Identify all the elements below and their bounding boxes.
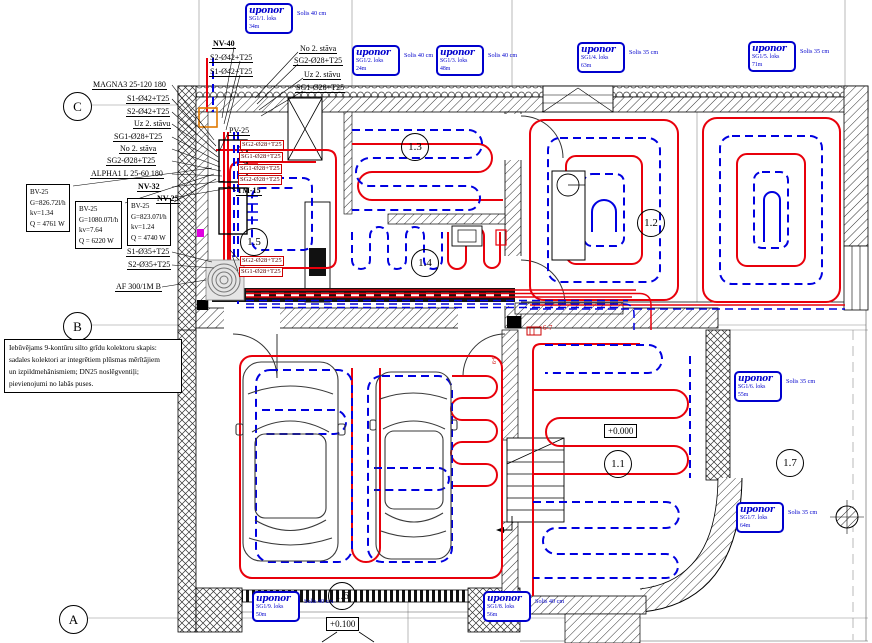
kv-value: kv=1.34	[30, 208, 66, 219]
pipe-spacing: Solis 35 cm	[629, 49, 658, 56]
loop-id: SG1/1. loks	[249, 16, 289, 24]
note-line: sadales kolektori ar integrētiem plūsmas…	[9, 354, 177, 366]
uponor-logo: uponor	[356, 48, 396, 58]
loop-id: SG1/4. loks	[581, 55, 621, 63]
pipe-spacing: Solis 40 cm	[297, 10, 326, 17]
heat-output: Q = 4761 W	[30, 219, 66, 230]
pipe-tag-4: SG2-Ø28+T25	[238, 175, 282, 185]
uponor-badge-loop1: uponor SG1/1. loks 34m Solis 40 cm	[245, 3, 326, 34]
loop-length: 34m	[249, 24, 289, 32]
label-no2-a: No 2. stāva	[299, 45, 337, 54]
uponor-badge-loop2: uponor SG1/2. loks 24m Solis 40 cm	[352, 45, 433, 76]
valve-type: BV-25	[79, 204, 118, 215]
flow-rate: G=1080.07l/h	[79, 215, 118, 226]
label-magna-pump: MAGNA3 25-120 180	[92, 81, 167, 90]
uponor-logo: uponor	[256, 594, 296, 604]
pipe-tag-3: SG1-Ø28+T25	[238, 164, 282, 174]
loop-id: SG1/2. loks	[356, 58, 396, 66]
label-s2-42-a: S2-Ø42+T25	[209, 54, 253, 63]
floor-heating-plan: C B A uponor SG1/1. loks 34m Solis 40 cm…	[0, 0, 872, 643]
uponor-logo: uponor	[738, 374, 778, 384]
label-no2-b: No 2. stāva	[119, 145, 157, 154]
room-circle-1-6: 1.6	[328, 582, 356, 610]
elevation-marker-ground: +0.000	[604, 424, 637, 438]
floor-drain	[206, 260, 244, 300]
kv-value: kv=1.24	[131, 222, 167, 233]
loop-id: SG1/7. loks	[740, 515, 780, 523]
label-sg2-28-a: SG2-Ø28+T25	[293, 57, 343, 66]
room-circle-1-1: 1.1	[604, 450, 632, 478]
uponor-badge-loop7: uponor SG1/7. loks 64m Solis 35 cm	[736, 502, 817, 533]
uponor-logo: uponor	[752, 44, 792, 54]
loop-id: SG1/9. loks	[256, 604, 296, 612]
label-nv32: NV-32	[137, 183, 161, 192]
uponor-logo: uponor	[740, 505, 780, 515]
pipe-tag-5: SG2-Ø28+T25	[240, 256, 284, 266]
uponor-logo: uponor	[249, 6, 289, 16]
pipe-tag-6: SG1-Ø28+T25	[239, 267, 283, 277]
uponor-badge-loop6: uponor SG1/6. loks 55m Solis 35 cm	[734, 371, 815, 402]
pipe-spacing: Solis 40 cm	[535, 598, 564, 605]
loop-id: SG1/8. loks	[487, 604, 527, 612]
label-s2-35: S2-Ø35+T25	[127, 261, 171, 270]
label-nv25: NV-25	[156, 195, 180, 204]
heat-output: Q = 6220 W	[79, 236, 118, 247]
label-tm15: TM-15	[236, 187, 262, 196]
valve-group-marker: 6-7	[543, 324, 552, 332]
label-alpha-pump: ALPHA1 L 25-60 180	[90, 170, 164, 179]
valve-box-1: BV-25 G=826.72l/h kv=1.34 Q = 4761 W	[26, 184, 70, 232]
pipe-spacing: Solis 35 cm	[786, 378, 815, 385]
room-circle-1-3: 1.3	[401, 133, 429, 161]
loop-length: 71m	[752, 62, 792, 70]
sensor-marker	[197, 229, 204, 237]
label-uz2-a: Uz 2. stāvu	[303, 71, 341, 80]
valve-box-3: BV-25 G=823.07l/h kv=1.24 Q = 4740 W	[127, 198, 171, 246]
grid-axis-c: C	[63, 92, 92, 121]
note-line: un izpildmehānismiem; DN25 noslēgventiļi…	[9, 366, 177, 378]
valve-type: BV-25	[30, 187, 66, 198]
pipe-tag-1: SG2-Ø28+T25	[240, 140, 284, 150]
riser-id-marker: 8-9	[490, 356, 496, 364]
label-s1-35: S1-Ø35+T25	[126, 248, 170, 257]
note-line: pievienojumi no labās puses.	[9, 378, 177, 390]
room-circle-1-2: 1.2	[637, 209, 665, 237]
label-af300: AF 300/1M B	[115, 283, 162, 292]
label-sg2-28-b: SG2-Ø28+T25	[106, 157, 156, 166]
grid-axis-a: A	[59, 605, 88, 634]
uponor-logo: uponor	[581, 45, 621, 55]
uponor-logo: uponor	[487, 594, 527, 604]
collector-note: Iebūvējams 9-kontūru silto grīdu kolekto…	[4, 339, 182, 393]
loop-length: 55m	[738, 392, 778, 400]
loop-id: SG1/5. loks	[752, 54, 792, 62]
loop-length: 48m	[440, 66, 480, 74]
valve-box-2: BV-25 G=1080.07l/h kv=7.64 Q = 6220 W	[75, 201, 122, 249]
loop-length: 64m	[740, 523, 780, 531]
flow-rate: G=826.72l/h	[30, 198, 66, 209]
label-s1-42-b: S1-Ø42+T25	[126, 95, 170, 104]
grid-axis-b: B	[63, 312, 92, 341]
label-sg1-28-a: SG1-Ø28+T25	[295, 84, 345, 93]
pipe-spacing: Solis 35 cm	[788, 509, 817, 516]
loop-length: 50m	[256, 612, 296, 620]
room-circle-1-7: 1.7	[776, 449, 804, 477]
elevation-marker-garage: +0.100	[326, 617, 359, 631]
label-s1-42-a: S1-Ø42+T25	[209, 68, 253, 77]
uponor-badge-loop4: uponor SG1/4. loks 63m Solis 35 cm	[577, 42, 658, 73]
label-s2-42-b: S2-Ø42+T25	[126, 108, 170, 117]
pipe-spacing: Solis 40 cm	[488, 52, 517, 59]
uponor-badge-loop3: uponor SG1/3. loks 48m Solis 40 cm	[436, 45, 517, 76]
pipe-spacing: Solis 40 cm	[404, 52, 433, 59]
kv-value: kv=7.64	[79, 225, 118, 236]
uponor-logo: uponor	[440, 48, 480, 58]
label-sg1-28-b: SG1-Ø28+T25	[113, 133, 163, 142]
label-pv25: PV-25	[228, 127, 250, 136]
room-circle-1-4: 1.4	[411, 249, 439, 277]
loop-id: SG1/3. loks	[440, 58, 480, 66]
flow-rate: G=823.07l/h	[131, 212, 167, 223]
room-circle-1-5: 1.5	[240, 228, 268, 256]
pipe-tag-2: SG1-Ø28+T25	[239, 152, 283, 162]
heat-output: Q = 4740 W	[131, 233, 167, 244]
loop-id: SG1/6. loks	[738, 384, 778, 392]
uponor-badge-loop8: uponor SG1/8. loks 56m Solis 40 cm	[483, 591, 564, 622]
uponor-badge-loop5: uponor SG1/5. loks 71m Solis 35 cm	[748, 41, 829, 72]
note-line: Iebūvējams 9-kontūru silto grīdu kolekto…	[9, 342, 177, 354]
loop-length: 63m	[581, 63, 621, 71]
label-nv40: NV-40	[212, 40, 236, 49]
loop-length: 24m	[356, 66, 396, 74]
pipe-spacing: Solis 35 cm	[800, 48, 829, 55]
uponor-badge-loop9: uponor SG1/9. loks 50m Solis 40 cm	[252, 591, 333, 622]
label-uz2-b: Uz 2. stāvu	[133, 120, 171, 129]
loop-length: 56m	[487, 612, 527, 620]
